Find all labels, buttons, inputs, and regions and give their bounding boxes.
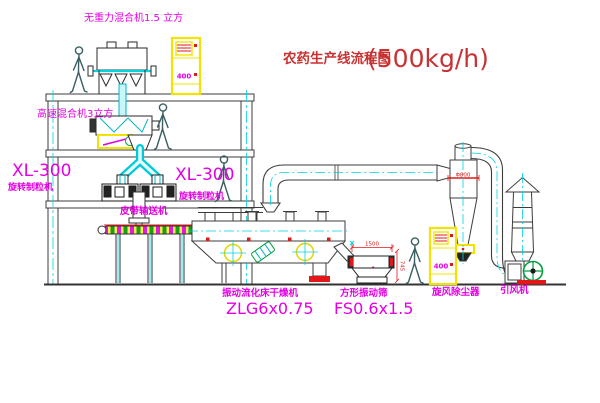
flow-diagram: 400 400 农药生产线流程图 (500kg/h) 无重力混合机1.5 立方 …: [0, 0, 600, 403]
dim-screen-length: 1500: [365, 242, 379, 248]
dim-cyclone-diameter: Φ800: [456, 173, 471, 179]
induced-draft-fan: [505, 261, 546, 285]
label-screen-model: FS0.6x1.5: [334, 299, 413, 318]
label-dryer-name: 振动流化床干燥机: [222, 287, 299, 299]
label-fan: 引风机: [500, 284, 529, 296]
fluid-bed-dryer: [188, 208, 349, 284]
gravity-free-mixer: [88, 42, 156, 116]
worker-figure-1: [70, 47, 87, 93]
dim-screen-height: 745: [399, 261, 405, 272]
label-granulator-right-name: 旋转制粒机: [178, 190, 224, 202]
worker-figure-4: [406, 238, 423, 284]
label-cyclone: 旋风除尘器: [431, 286, 480, 298]
cabinet-top-text: 400: [177, 73, 192, 81]
cabinet-right-text: 400: [434, 263, 449, 271]
label-screen-name: 方形振动筛: [340, 287, 388, 299]
label-high-speed-mixer: 高速混合机3立方: [37, 107, 113, 120]
control-cabinet-top: 400: [172, 38, 200, 94]
label-granulator-left-name: 旋转制粒机: [7, 181, 53, 193]
high-speed-mixer: [90, 116, 159, 150]
label-granulator-left-model: XL-300: [12, 161, 71, 181]
label-belt-conveyor: 皮带输送机: [119, 205, 168, 217]
cad-canvas: 400 400 农药生产线流程图 (500kg/h) 无重力混合机1.5 立方 …: [0, 0, 600, 403]
belt-conveyor: [98, 225, 204, 283]
label-granulator-right-model: XL-300: [175, 165, 234, 185]
control-cabinet-right: 400: [430, 228, 456, 284]
label-dryer-model: ZLG6x0.75: [226, 299, 314, 318]
title-capacity: (500kg/h): [367, 44, 489, 73]
exhaust-duct: [261, 165, 440, 212]
floor-slab-top: [46, 94, 254, 101]
label-gravity-mixer: 无重力混合机1.5 立方: [84, 11, 183, 24]
